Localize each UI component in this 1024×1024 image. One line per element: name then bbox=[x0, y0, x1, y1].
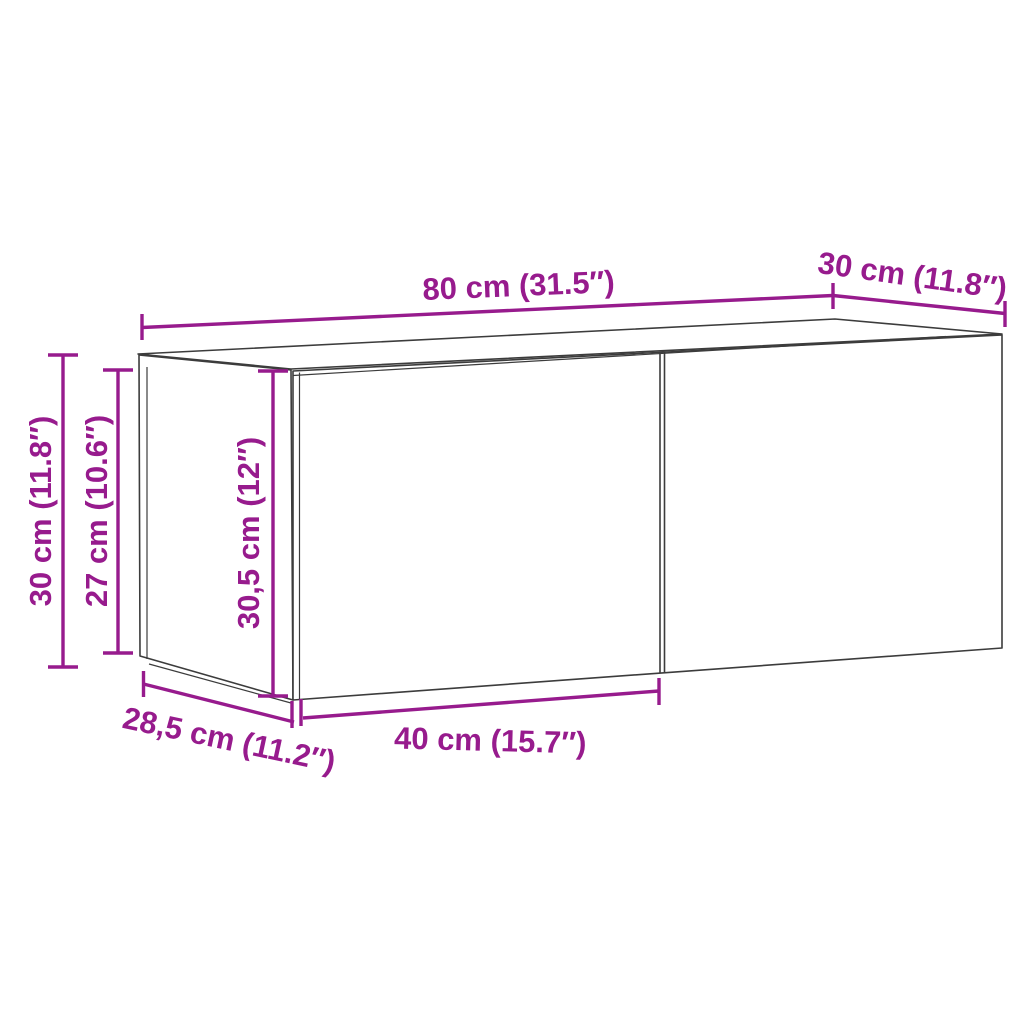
dim-inner-height-label: 27 cm (10.6″) bbox=[79, 415, 114, 607]
dim-bottom-depth-label: 28,5 cm (11.2″) bbox=[120, 700, 339, 779]
dim-door-height-label: 30,5 cm (12″) bbox=[231, 437, 266, 629]
cabinet-left-side-face bbox=[139, 355, 293, 700]
dim-top-width-label: 80 cm (31.5″) bbox=[422, 264, 616, 307]
dim-left-height-label: 30 cm (11.8″) bbox=[23, 416, 58, 607]
dim-door-width-label: 40 cm (15.7″) bbox=[394, 720, 587, 760]
cabinet-front-face bbox=[293, 335, 1002, 700]
cabinet bbox=[138, 319, 1002, 703]
dimension-diagram: 80 cm (31.5″) 30 cm (11.8″) 30 cm (11.8″… bbox=[0, 0, 1024, 1024]
